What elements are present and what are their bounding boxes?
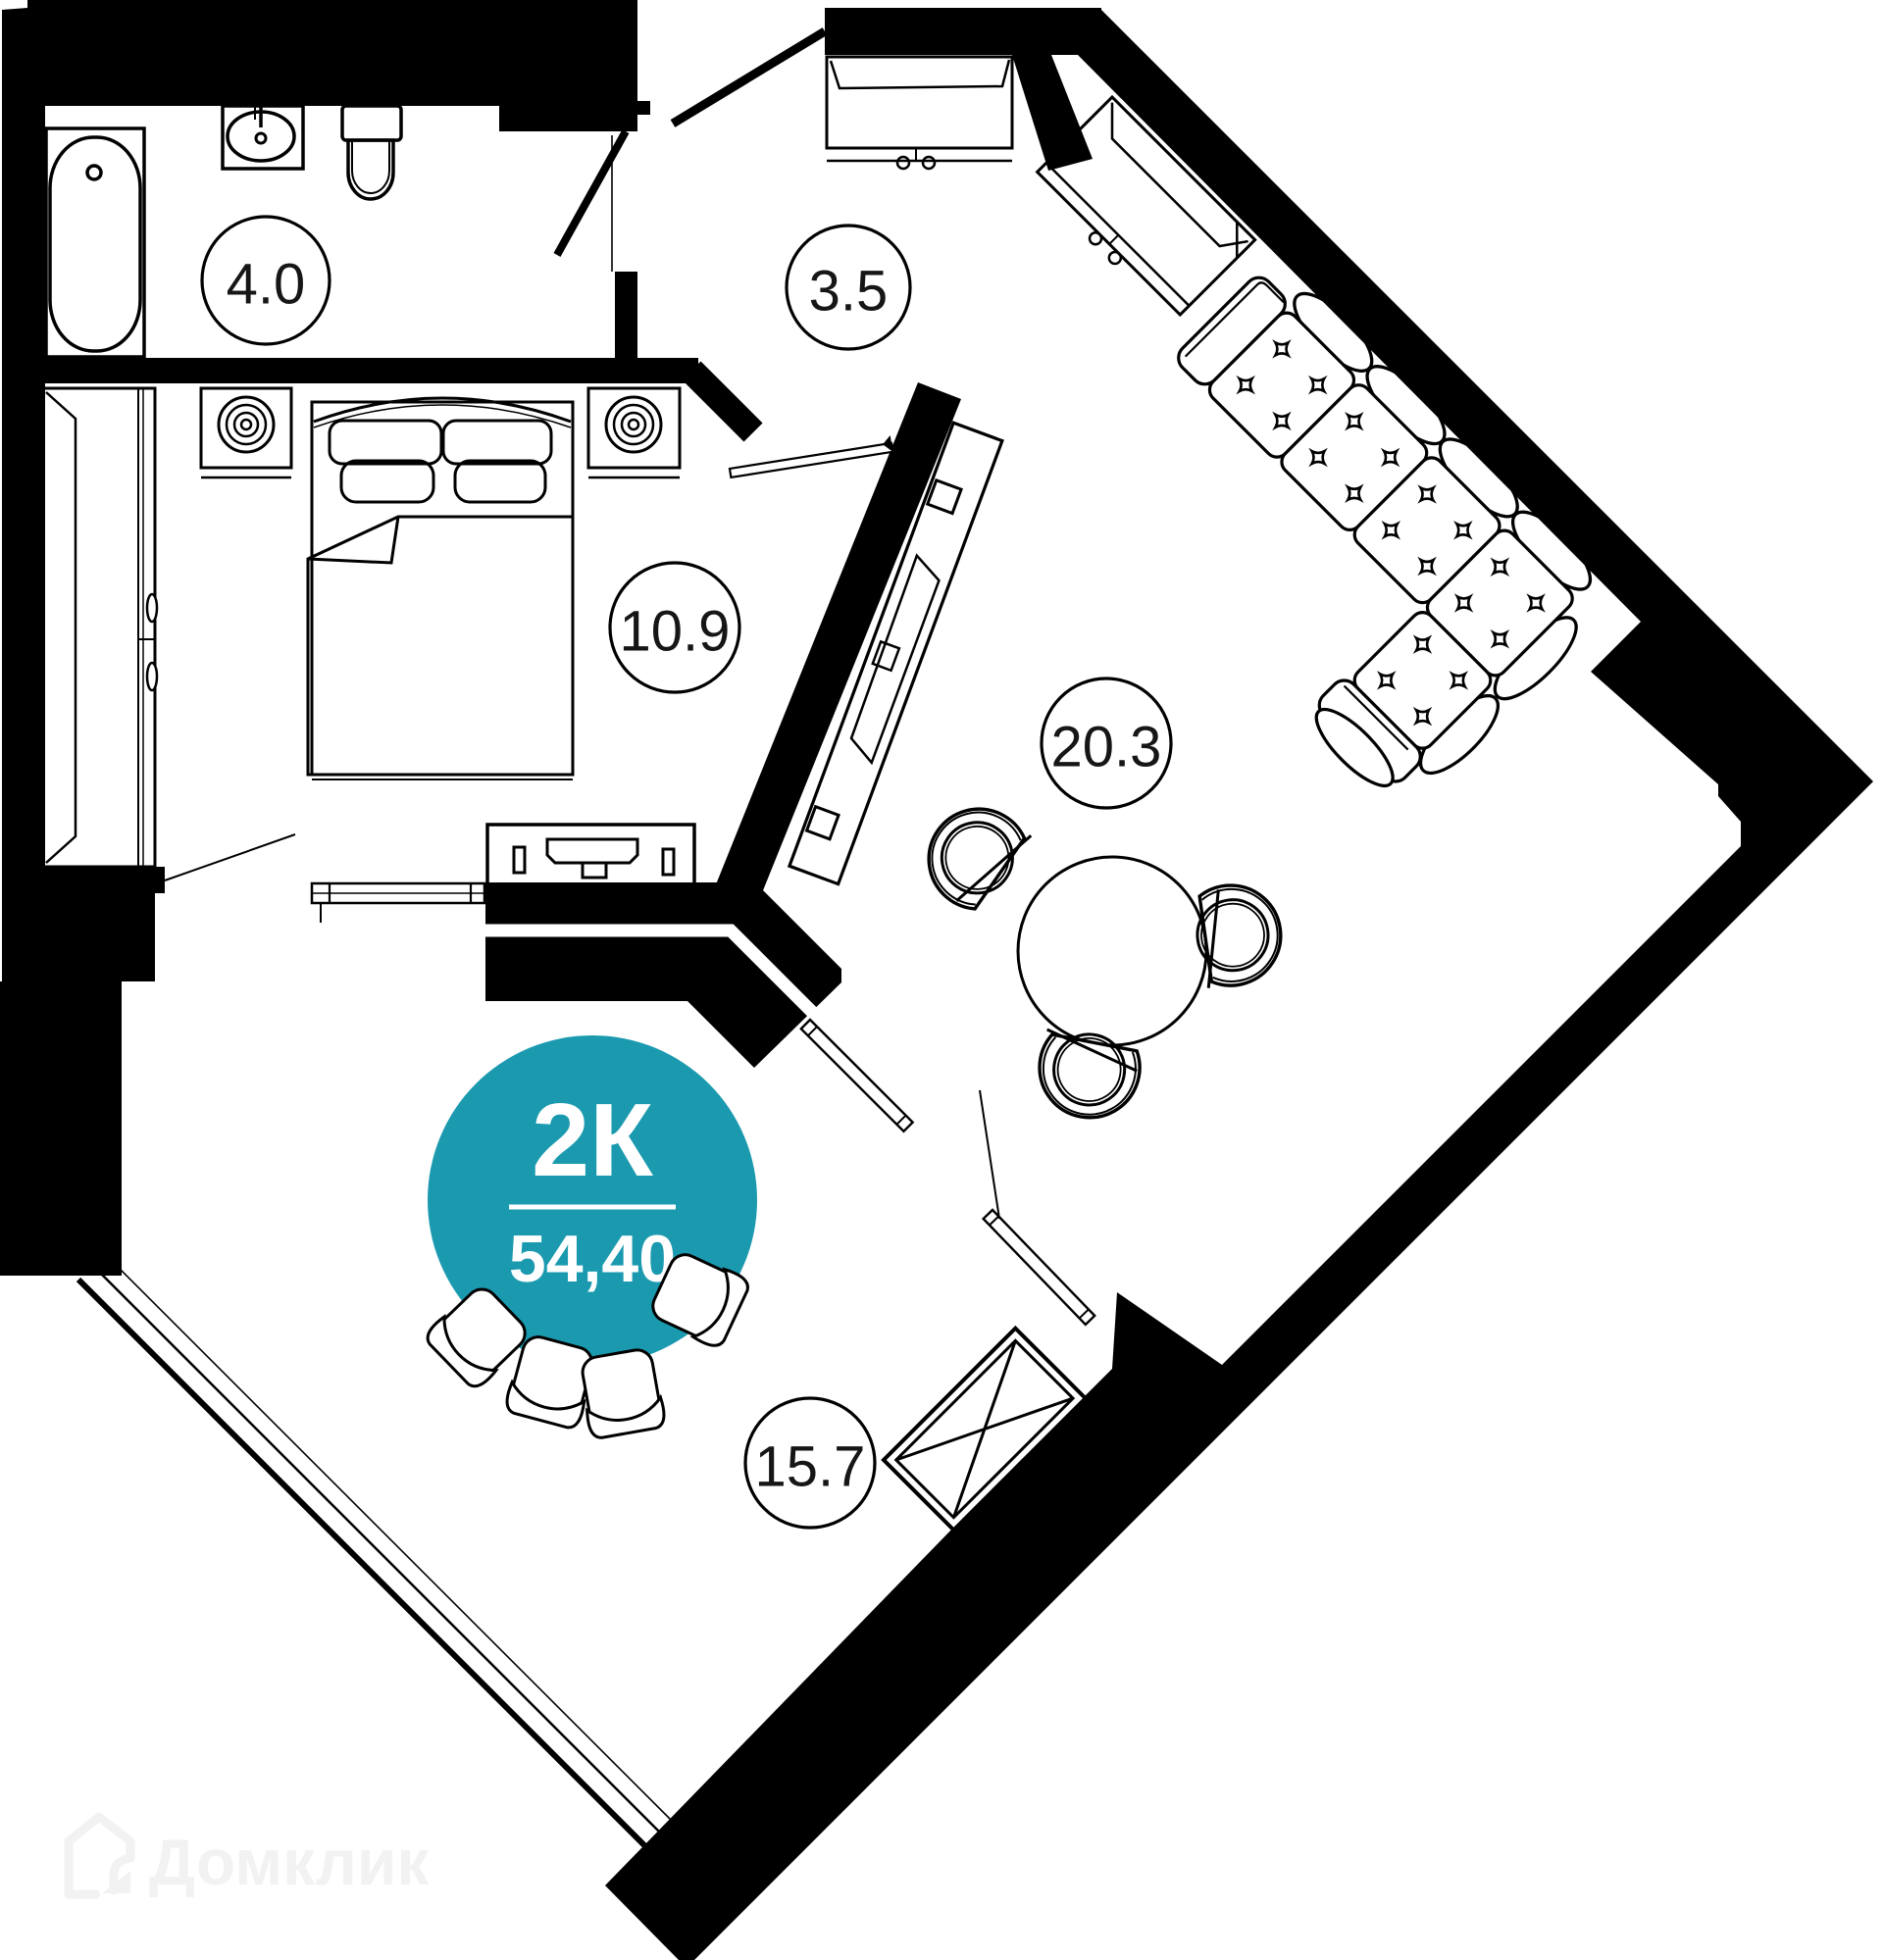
- svg-text:3.5: 3.5: [809, 260, 889, 324]
- svg-text:Домклик: Домклик: [149, 1826, 430, 1898]
- svg-text:10.9: 10.9: [620, 600, 731, 664]
- svg-text:2К: 2К: [532, 1082, 653, 1198]
- svg-text:20.3: 20.3: [1051, 716, 1162, 779]
- svg-text:15.7: 15.7: [755, 1435, 866, 1499]
- svg-text:54,40: 54,40: [509, 1222, 676, 1296]
- svg-text:4.0: 4.0: [227, 253, 306, 317]
